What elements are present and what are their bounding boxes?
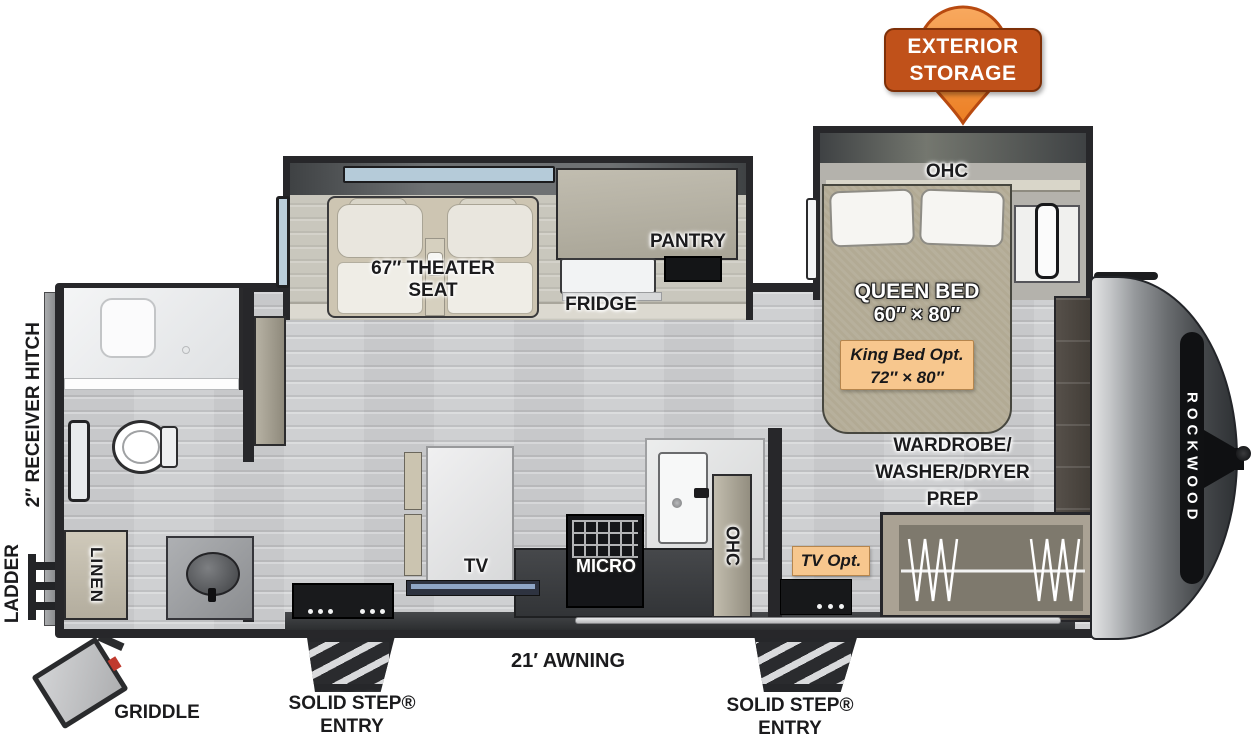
shower-shelf [64, 378, 239, 390]
entry2-label-line2: ENTRY [700, 717, 880, 740]
wardrobe-closet [880, 512, 1100, 618]
brand-labelwrap: ROCKWOOD [1180, 332, 1204, 584]
exterior-storage-line1: EXTERIOR [907, 33, 1018, 60]
pantry-opening [664, 256, 722, 282]
wardrobe-prep-line2: WASHER/DRYER [845, 459, 1060, 486]
awning-tube [575, 617, 1061, 624]
theater-slide-window [343, 166, 555, 183]
toilet-seat [122, 430, 160, 464]
king-bed-option-line1: King Bed Opt. [841, 343, 973, 367]
micro-label: MICRO [556, 556, 656, 577]
theater-seat-label-line1: 67″ THEATER [327, 258, 539, 280]
entry1-label: SOLID STEP® ENTRY [262, 692, 442, 738]
tv-option-box: TV Opt. [792, 546, 870, 576]
fireplace-dot [370, 609, 375, 614]
shower-seat [100, 298, 156, 358]
entry-step-2 [744, 634, 868, 692]
tv-label: TV [436, 556, 516, 578]
bedroom-side-window [1035, 203, 1059, 279]
entry-step-treads [309, 642, 390, 684]
cabinet-dot [839, 604, 844, 609]
pantry-label: PANTRY [618, 231, 758, 253]
sink-drain [672, 498, 682, 508]
fireplace-dot [360, 609, 365, 614]
tv-screen [406, 580, 540, 596]
brand-label: ROCKWOOD [1184, 392, 1201, 525]
tongue-jack-knob [1236, 446, 1251, 461]
bed-pillow [919, 189, 1005, 248]
exterior-storage-box: EXTERIOR STORAGE [884, 28, 1042, 92]
entry1-label-line1: SOLID STEP® [262, 692, 442, 715]
bedroom-slide-backwall [820, 133, 1086, 163]
shower-drain [182, 346, 190, 354]
awning-label: 21′ AWNING [468, 650, 668, 673]
fireplace-dot [328, 609, 333, 614]
entry2-label: SOLID STEP® ENTRY [700, 694, 880, 740]
entry1-label-line2: ENTRY [262, 715, 442, 738]
ladder-label: LADDER [2, 544, 24, 623]
bath-window [68, 420, 90, 502]
ladder-labelwrap: LADDER [0, 524, 26, 644]
bedroom-ohc-label: OHC [887, 161, 1007, 183]
entry-step-treads [756, 642, 850, 684]
theater-side-window [276, 196, 290, 288]
theater-seat-label: 67″ THEATER SEAT [327, 258, 539, 302]
tv-screen-glow [411, 584, 535, 589]
shower [64, 288, 244, 390]
entry-step-1 [298, 634, 404, 692]
queen-bed-label-line2: 60″ × 80″ [822, 304, 1012, 327]
cabinet-dot [828, 604, 833, 609]
fridge-label: FRIDGE [531, 294, 671, 316]
theater-backrest [447, 204, 533, 258]
cabinet-dot [817, 604, 822, 609]
king-bed-option-line2: 72″ × 80″ [841, 367, 973, 388]
griddle-knob [108, 656, 122, 671]
queen-bed-label: QUEEN BED 60″ × 80″ [822, 280, 1012, 327]
vanity-faucet [208, 588, 216, 602]
fireplace-dot [380, 609, 385, 614]
exterior-storage-line2: STORAGE [910, 60, 1017, 87]
medicine-cabinet [254, 316, 286, 446]
bedroom-left-window [806, 198, 818, 280]
tv-option-label: TV Opt. [801, 551, 861, 571]
wardrobe-hangers [883, 515, 1103, 621]
wardrobe-prep-line3: PREP [845, 486, 1060, 513]
receiver-hitch-label: 2″ RECEIVER HITCH [23, 322, 45, 507]
floorplan-canvas: 67″ THEATER SEAT PANTRY FRIDGE OHC QUEEN… [0, 0, 1251, 742]
king-bed-option-box: King Bed Opt. 72″ × 80″ [840, 340, 974, 390]
tv-island-cabinet [404, 452, 422, 510]
tv-island-cabinet [404, 514, 422, 576]
entry2-label-line1: SOLID STEP® [700, 694, 880, 717]
toilet-tank [160, 426, 178, 468]
tv-option-cabinet [780, 579, 852, 615]
kitchen-ohc-label: OHC [722, 526, 743, 566]
stove-grate [572, 520, 638, 558]
wardrobe-prep-line1: WARDROBE/ [845, 432, 1060, 459]
theater-backrest [337, 204, 423, 258]
linen-label: LINEN [86, 547, 106, 603]
bed-pillow [829, 189, 915, 248]
griddle-label: GRIDDLE [92, 702, 222, 724]
wardrobe-prep-label: WARDROBE/ WASHER/DRYER PREP [845, 432, 1060, 513]
kitchen-faucet [694, 488, 709, 498]
theater-seat-label-line2: SEAT [327, 280, 539, 302]
kitchen-ohc-labelwrap: OHC [712, 474, 752, 618]
kitchen-sink [658, 452, 708, 544]
hitch-labelwrap: 2″ RECEIVER HITCH [18, 296, 50, 534]
bath-divider-wall [243, 288, 254, 462]
fireplace-dot [308, 609, 313, 614]
queen-bed-label-line1: QUEEN BED [822, 280, 1012, 304]
fridge-front [560, 258, 656, 294]
fireplace-dot [318, 609, 323, 614]
fireplace [292, 583, 394, 619]
linen-labelwrap: LINEN [64, 530, 128, 620]
